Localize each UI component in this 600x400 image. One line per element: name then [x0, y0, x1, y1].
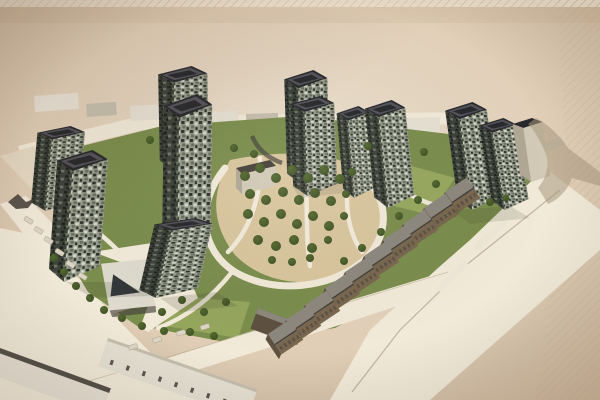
photo-of-masterplan-rendering — [0, 0, 600, 400]
masterplan-rendering — [0, 0, 600, 400]
corner-shade — [0, 0, 600, 400]
